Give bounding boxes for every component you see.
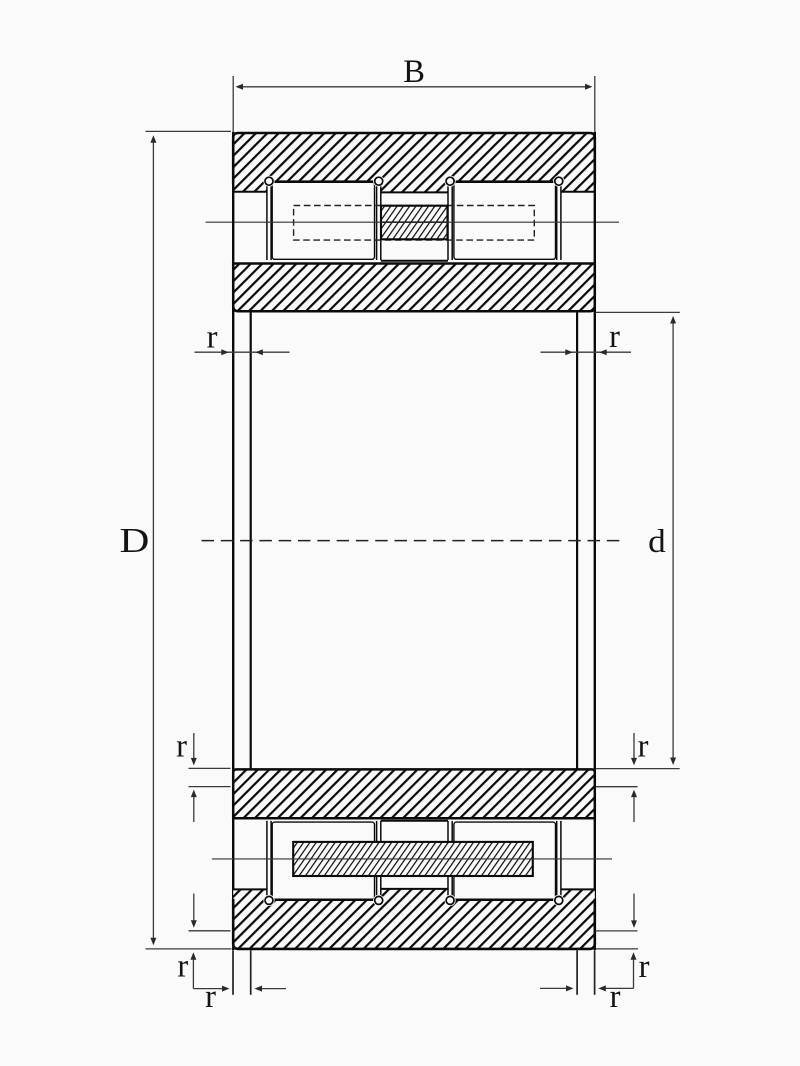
svg-text:B: B — [403, 54, 425, 90]
svg-text:r: r — [177, 949, 188, 985]
svg-text:D: D — [120, 522, 150, 560]
svg-text:r: r — [176, 728, 187, 764]
svg-text:d: d — [648, 524, 666, 560]
svg-text:r: r — [207, 320, 218, 356]
svg-text:r: r — [638, 729, 649, 765]
svg-text:r: r — [639, 949, 650, 985]
svg-text:r: r — [609, 319, 620, 355]
svg-text:r: r — [205, 979, 216, 1015]
svg-text:r: r — [610, 979, 621, 1015]
